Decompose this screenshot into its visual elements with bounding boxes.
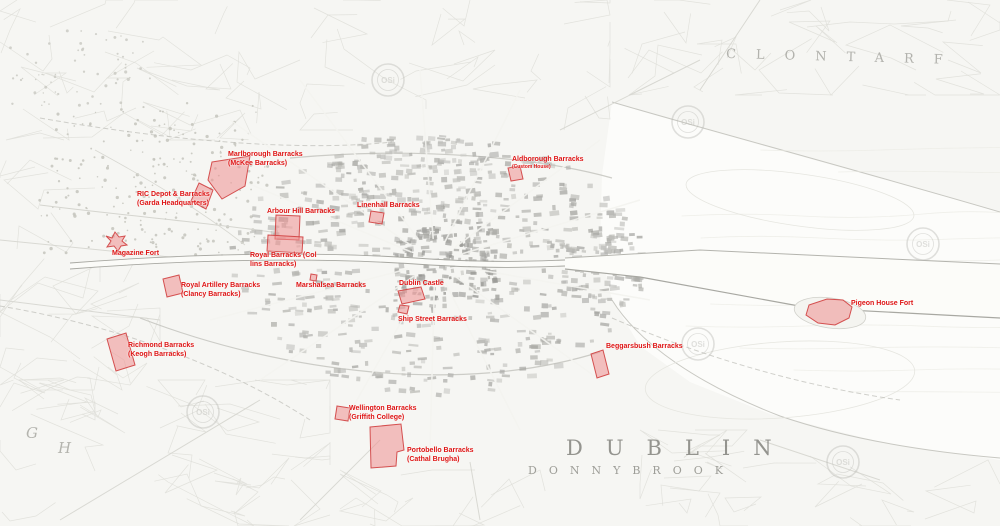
barracks-area-linenhall-barracks xyxy=(369,211,384,224)
barracks-area-portobello-barracks xyxy=(370,424,404,468)
osi-watermark: OSi xyxy=(372,64,404,96)
barracks-area-marlborough-barracks xyxy=(208,156,250,199)
osi-watermark: OSi xyxy=(827,446,859,478)
barracks-area-royal-artillery-barracks xyxy=(163,275,183,297)
basemap-svg: OSiOSiOSiOSiOSiOSi xyxy=(0,0,1000,526)
svg-text:OSi: OSi xyxy=(381,76,395,85)
dublin-barracks-map: OSiOSiOSiOSiOSiOSi CLONTARF DUBLIN DONNY… xyxy=(0,0,1000,526)
barracks-area-beggarsbush-barracks xyxy=(591,350,609,378)
barracks-area-ric-depot-barracks xyxy=(191,183,213,209)
barracks-area-dublin-castle xyxy=(398,287,425,304)
svg-text:OSi: OSi xyxy=(196,408,210,417)
osi-watermark: OSi xyxy=(187,396,219,428)
svg-text:OSi: OSi xyxy=(836,458,850,467)
barracks-area-wellington-barracks xyxy=(335,406,350,421)
barracks-area-richmond-barracks xyxy=(107,333,135,371)
svg-text:OSi: OSi xyxy=(681,118,695,127)
barracks-area-aldborough-barracks xyxy=(508,166,523,181)
barracks-area-royal-barracks xyxy=(267,235,303,253)
river-liffey-layer xyxy=(70,250,1000,333)
svg-text:OSi: OSi xyxy=(691,340,705,349)
svg-text:OSi: OSi xyxy=(916,240,930,249)
barracks-area-ship-street-barracks xyxy=(398,305,409,314)
barracks-area-marshalsea-barracks xyxy=(310,274,317,281)
barracks-area-magazine-fort xyxy=(106,232,127,251)
